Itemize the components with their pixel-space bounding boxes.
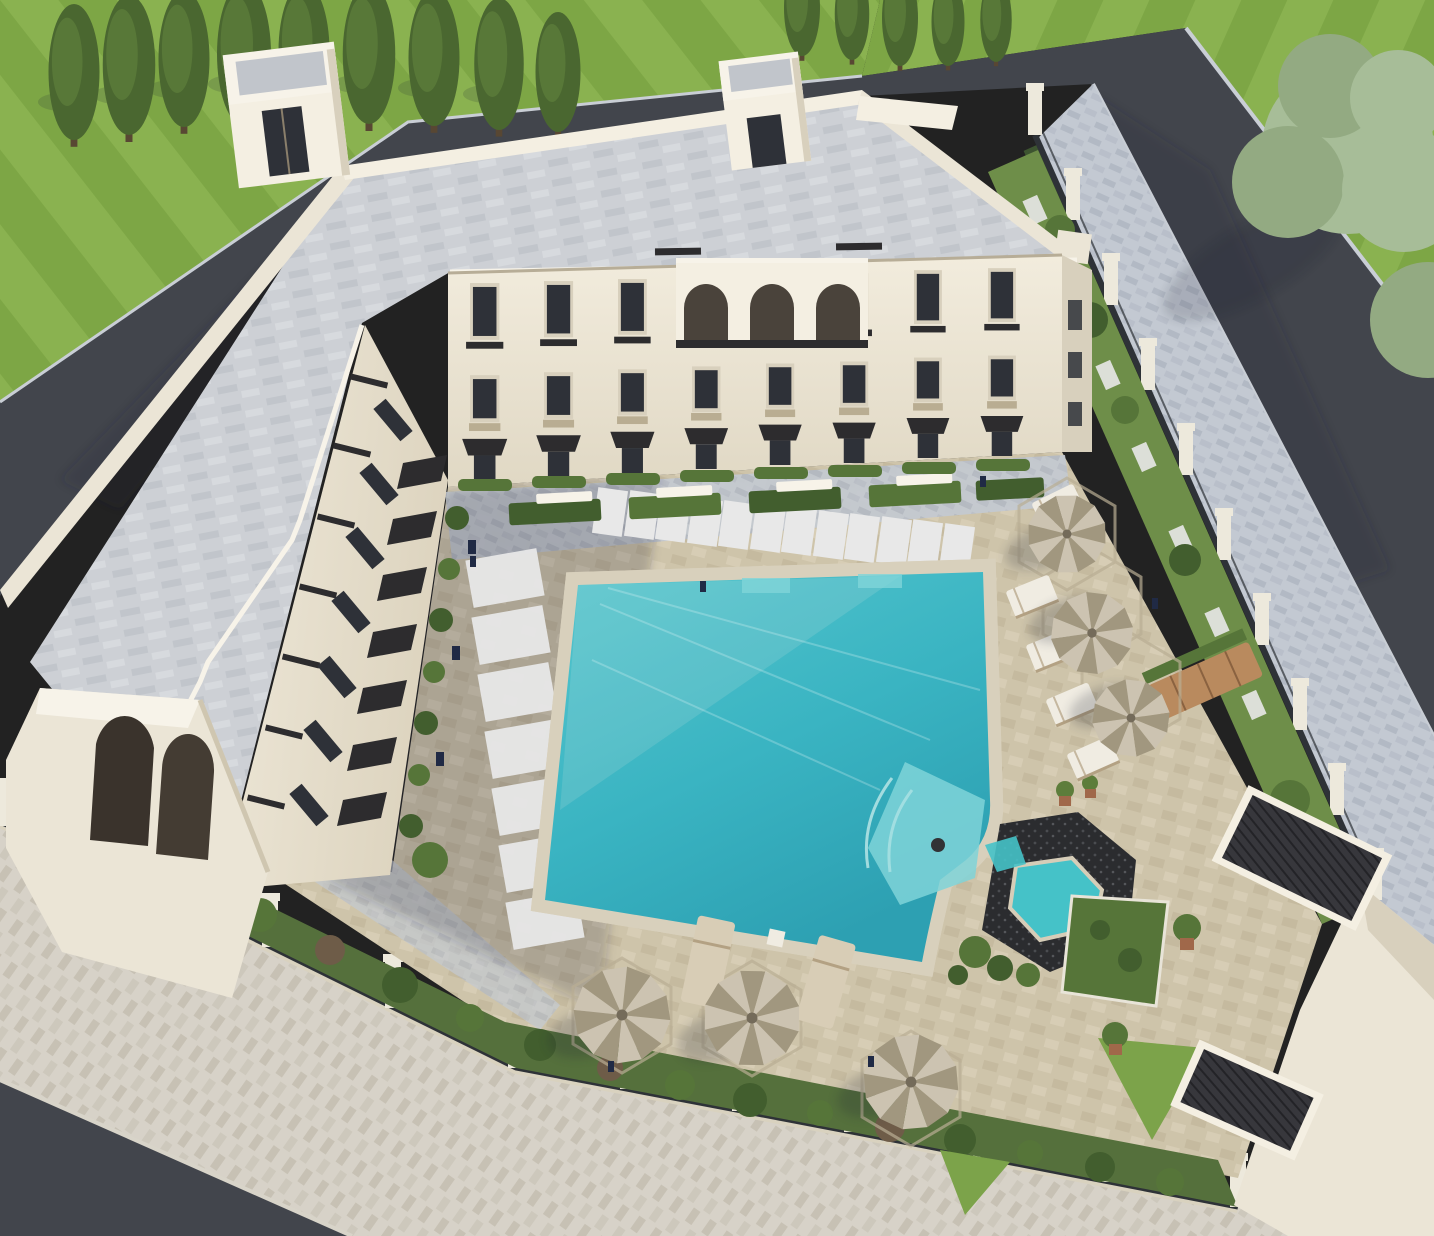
render-canvas bbox=[0, 0, 1434, 1236]
stair-tower-northwest bbox=[223, 42, 350, 189]
arch-opening bbox=[90, 716, 154, 846]
architectural-render bbox=[0, 0, 1434, 1236]
pool-steps bbox=[742, 578, 790, 593]
center-loggia bbox=[676, 258, 868, 348]
facade-east-end bbox=[1062, 255, 1092, 452]
stair-tower-north bbox=[718, 52, 811, 171]
tower-door bbox=[747, 114, 787, 168]
